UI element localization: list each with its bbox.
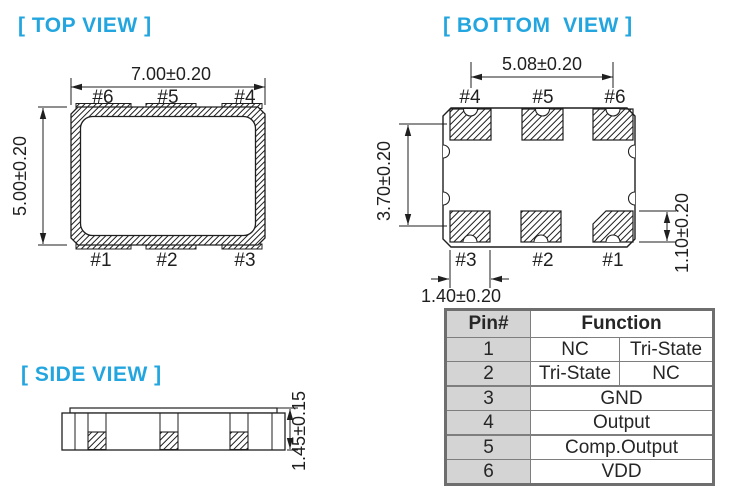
function-cell: Output — [531, 411, 714, 436]
top-view-height-dimension: 5.00±0.20 — [10, 107, 67, 245]
pin-function-table: Pin# Function 1 NC Tri-State 2 Tri-State… — [444, 308, 715, 486]
bottom-view-pad-height-dimension: 1.10±0.20 — [639, 193, 692, 273]
table-header-row: Pin# Function — [446, 310, 714, 338]
header-function: Function — [531, 310, 714, 338]
dimension-label-top-height: 5.00±0.20 — [10, 136, 30, 216]
table-row-pin6: 6 VDD — [446, 460, 714, 485]
pin-label-2: #2 — [532, 250, 553, 271]
dimension-label-top-width: 7.00±0.20 — [131, 64, 211, 84]
function-cell: NC — [531, 338, 620, 362]
package-dimension-drawing: [ TOP VIEW ] [ BOTTOM VIEW ] [ SIDE VIEW… — [0, 0, 730, 491]
pin-label-1: #1 — [602, 250, 623, 271]
function-cell: NC — [620, 362, 714, 387]
header-pin-number: Pin# — [446, 310, 531, 338]
top-view-pin-labels-bottom: #1 #2 #3 — [90, 250, 255, 271]
pin-label-2: #2 — [156, 250, 177, 271]
function-cell: Comp.Output — [531, 435, 714, 460]
dimension-label-row-pitch: 3.70±0.20 — [374, 141, 394, 221]
pin-label-5: #5 — [532, 87, 553, 108]
bottom-view-package-body — [443, 108, 635, 247]
bottom-view-pad-span-dimension: 5.08±0.20 — [471, 54, 613, 88]
dimension-label-pad-width: 1.40±0.20 — [421, 286, 501, 306]
bottom-view-pin-labels-bottom: #3 #2 #1 — [455, 250, 623, 271]
table-row-pin2: 2 Tri-State NC — [446, 362, 714, 387]
function-cell: GND — [531, 386, 714, 411]
bottom-view-row-pitch-dimension: 3.70±0.20 — [374, 124, 447, 226]
function-cell: Tri-State — [620, 338, 714, 362]
table-row-pin4: 4 Output — [446, 411, 714, 436]
dimension-label-pad-height: 1.10±0.20 — [672, 193, 692, 273]
side-view-caption: [ SIDE VIEW ] — [21, 363, 162, 387]
pin-label-1: #1 — [90, 250, 111, 271]
table-row-pin3: 3 GND — [446, 386, 714, 411]
table-row-pin1: 1 NC Tri-State — [446, 338, 714, 362]
pin-number-cell: 1 — [446, 338, 531, 362]
bottom-view-pin-labels-top: #4 #5 #6 — [459, 87, 625, 108]
dimension-label-pad-span: 5.08±0.20 — [502, 54, 582, 74]
pin-label-3: #3 — [234, 250, 255, 271]
pin-label-4: #4 — [459, 87, 481, 108]
side-view-drawing: 1.45±0.15 — [50, 385, 340, 485]
pin-number-cell: 4 — [446, 411, 531, 436]
bottom-view-drawing: 5.08±0.20 #4 #5 #6 — [365, 50, 730, 316]
pin-number-cell: 3 — [446, 386, 531, 411]
pin-label-6: #6 — [604, 87, 625, 108]
pin-number-cell: 5 — [446, 435, 531, 460]
pin-number-cell: 6 — [446, 460, 531, 485]
pin-label-3: #3 — [455, 250, 476, 271]
top-view-drawing: 7.00±0.20 #6 #5 #4 5.00±0.20 — [0, 50, 330, 278]
table-row-pin5: 5 Comp.Output — [446, 435, 714, 460]
pin-number-cell: 2 — [446, 362, 531, 387]
top-view-caption: [ TOP VIEW ] — [18, 14, 152, 38]
function-cell: Tri-State — [531, 362, 620, 387]
side-view-package-body — [62, 408, 285, 450]
function-cell: VDD — [531, 460, 714, 485]
bottom-view-caption: [ BOTTOM VIEW ] — [443, 14, 633, 38]
top-view-package-body — [71, 104, 265, 250]
dimension-label-side-height: 1.45±0.15 — [289, 391, 309, 471]
